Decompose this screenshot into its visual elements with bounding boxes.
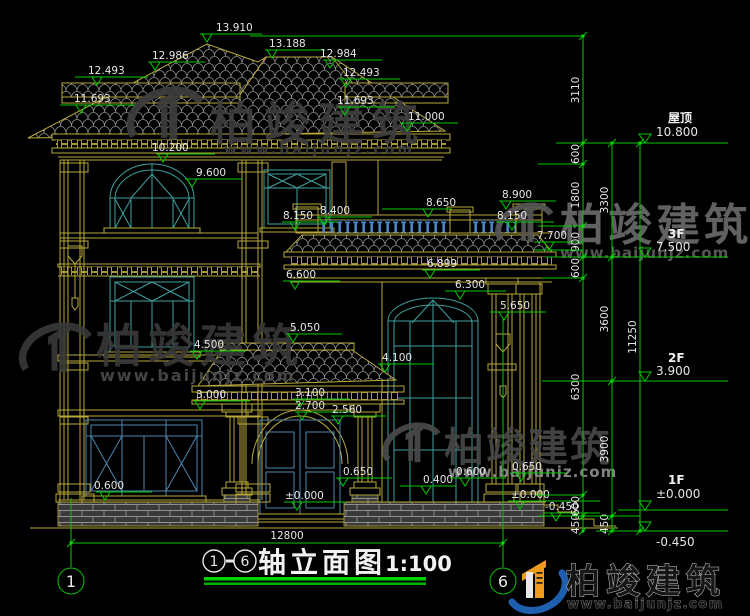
elevation-value: 13.188 — [269, 38, 306, 50]
chain-dim-value: 6300 — [570, 374, 582, 401]
elevation-value: 11.693 — [337, 95, 374, 107]
brick-base — [344, 502, 544, 526]
elevation-value: 4.500 — [194, 339, 224, 351]
watermark-url: www.baijunjz.com — [224, 142, 415, 158]
elevation-value: 8.150 — [497, 210, 527, 222]
floor-name: 2F — [668, 351, 685, 365]
chain-dim-value: 3600 — [599, 306, 611, 333]
drawing-scale: 1:100 — [385, 552, 452, 576]
watermark-url: www.baijunjz.com — [100, 366, 295, 385]
elevation-value: 5.050 — [290, 322, 320, 334]
elevation-value: 3.000 — [196, 389, 226, 401]
floor-elevation: -0.450 — [656, 535, 695, 549]
svg-text:6: 6 — [241, 554, 250, 570]
elevation-value: 5.650 — [500, 300, 530, 312]
title-underline — [204, 577, 426, 581]
elevation-value: 0.650 — [512, 461, 542, 473]
elevation-value: 3.100 — [295, 387, 325, 399]
elevation-value: 8.900 — [502, 189, 532, 201]
floor-elevation: 3.900 — [656, 364, 690, 378]
chain-dim-value: 450 — [570, 514, 582, 534]
floor-elevation: 10.800 — [656, 125, 698, 139]
cad-canvas: 柏竣建筑www.baijunjz.com柏竣建筑www.baijunjz.com… — [0, 0, 750, 616]
floor-name: 1F — [668, 473, 685, 487]
elevation-value: 8.400 — [320, 205, 350, 217]
svg-text:1: 1 — [66, 572, 76, 591]
elevation-value: 11.000 — [408, 111, 445, 123]
brand-name: 柏竣建筑 — [566, 562, 726, 602]
chain-dim-value: 11250 — [627, 320, 639, 353]
floor-elevation: 7.500 — [656, 240, 690, 254]
elevation-value: 0.600 — [94, 480, 124, 492]
chain-dim-value: 1800 — [570, 182, 582, 209]
floor-name: 3F — [668, 227, 685, 241]
elevation-value: 11.693 — [74, 93, 111, 105]
elevation-value: 6.899 — [427, 258, 457, 270]
chain-dim-value: 3300 — [599, 187, 611, 214]
elevation-value: 13.910 — [216, 22, 253, 34]
elevation-value: 6.300 — [455, 279, 485, 291]
total-width-dim: 12800 — [270, 530, 303, 542]
elevation-value: 12.493 — [88, 65, 125, 77]
elevation-value: 9.600 — [196, 167, 226, 179]
elevation-value: 0.650 — [343, 466, 373, 478]
chain-dim-value: 600 — [570, 496, 582, 516]
chain-dim-value: 3110 — [570, 77, 582, 104]
floor-elevation: ±0.000 — [656, 487, 700, 501]
elevation-value: 8.150 — [283, 210, 313, 222]
floor-name: 屋顶 — [668, 111, 692, 125]
drawing-title: 轴立面图 — [258, 546, 386, 579]
elevation-value: 7.700 — [537, 230, 567, 242]
elevation-value: 8.650 — [426, 197, 456, 209]
svg-text:6: 6 — [498, 572, 508, 591]
elevation-value: 2.700 — [295, 400, 325, 412]
brand-building-tower — [526, 572, 533, 598]
elevation-value: 12.493 — [343, 67, 380, 79]
chain-dim-value: 600 — [570, 144, 582, 164]
svg-text:1: 1 — [210, 554, 219, 570]
elevation-drawing: 柏竣建筑www.baijunjz.com柏竣建筑www.baijunjz.com… — [0, 0, 750, 616]
chain-dim-value: 3900 — [599, 436, 611, 463]
elevation-value: 0.600 — [456, 466, 486, 478]
elevation-value: 4.100 — [382, 352, 412, 364]
elevation-value: 12.986 — [152, 50, 189, 62]
elevation-value: 6.600 — [286, 269, 316, 281]
brand-url: www.baijunjz.com — [567, 597, 724, 612]
watermark-url: www.baijunjz.com — [560, 244, 729, 262]
chain-dim-value: 600 — [570, 258, 582, 278]
elevation-value: 2.560 — [332, 404, 362, 416]
title-underline — [204, 583, 426, 586]
elevation-value: ±0.000 — [285, 490, 324, 502]
elevation-value: 10.200 — [152, 142, 189, 154]
elevation-value: 12.984 — [320, 48, 357, 60]
floor-band-dentils — [60, 267, 258, 275]
chain-dim-value: 900 — [570, 232, 582, 252]
elevation-value: 0.400 — [423, 474, 453, 486]
brick-base — [58, 502, 258, 526]
